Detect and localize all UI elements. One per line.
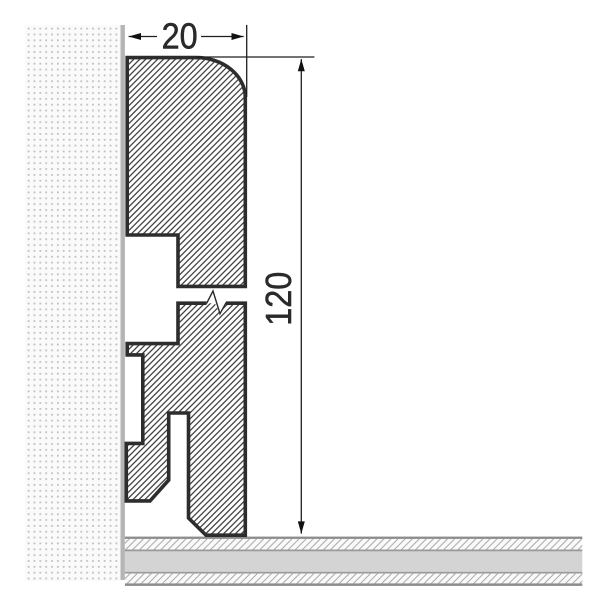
svg-text:120: 120 [259,272,299,326]
svg-text:20: 20 [162,17,198,57]
